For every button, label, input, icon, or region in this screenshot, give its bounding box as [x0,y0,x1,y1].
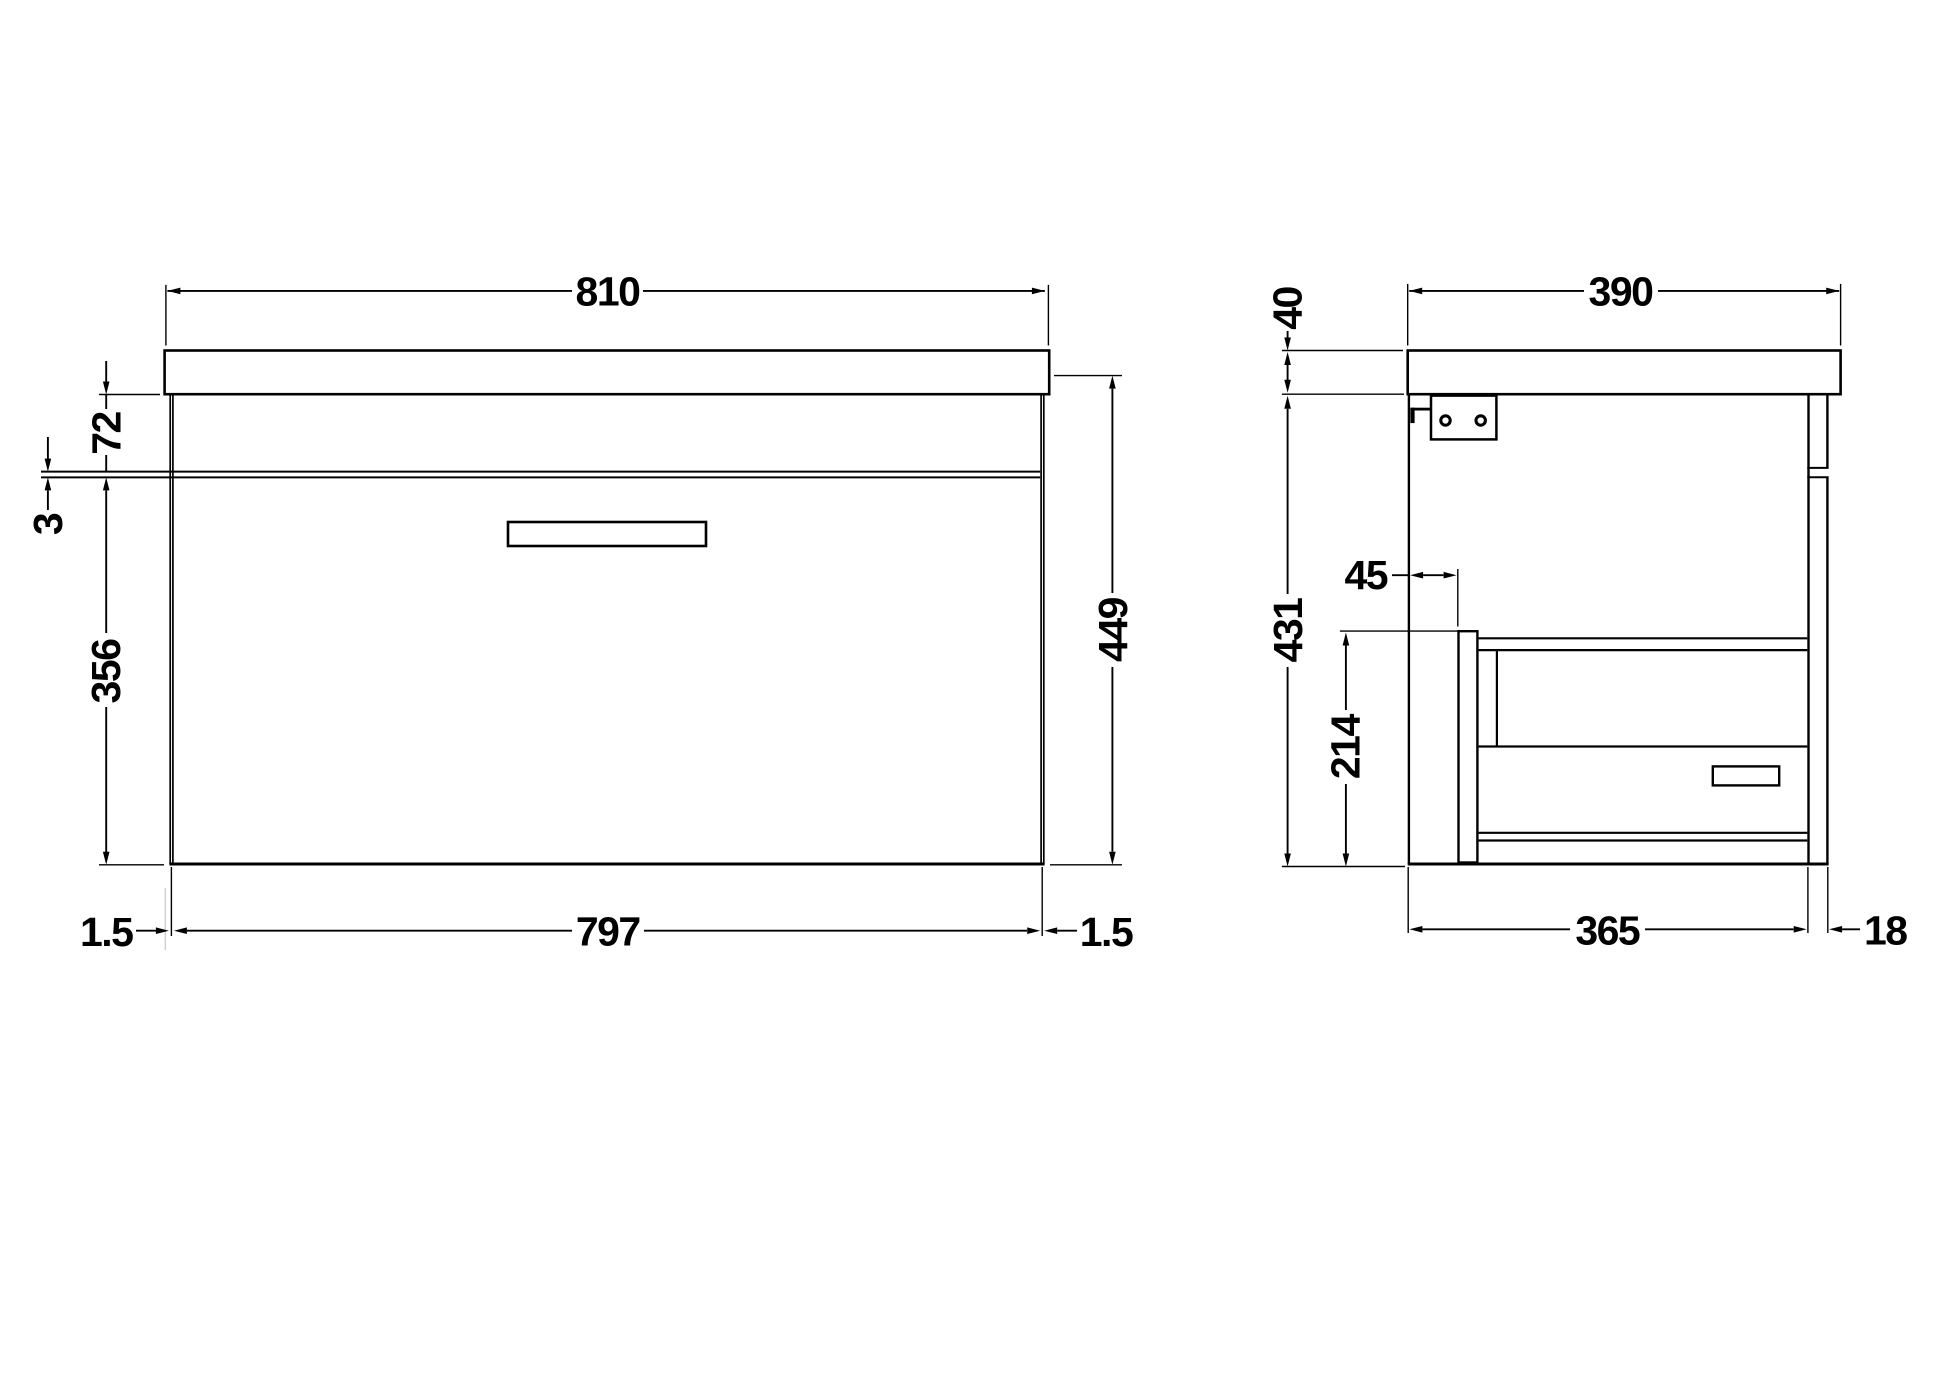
svg-text:1.5: 1.5 [1080,909,1133,955]
svg-text:72: 72 [83,412,129,455]
svg-text:365: 365 [1575,907,1640,953]
svg-text:18: 18 [1864,907,1907,953]
svg-text:1.5: 1.5 [80,909,133,955]
svg-text:810: 810 [576,268,641,314]
svg-text:431: 431 [1265,598,1311,663]
svg-text:356: 356 [83,639,129,704]
svg-text:3: 3 [25,513,71,535]
svg-text:390: 390 [1589,268,1654,314]
svg-text:40: 40 [1264,287,1310,330]
svg-text:45: 45 [1344,552,1387,598]
svg-text:449: 449 [1090,597,1136,662]
svg-text:214: 214 [1323,714,1369,780]
svg-text:797: 797 [576,908,640,954]
